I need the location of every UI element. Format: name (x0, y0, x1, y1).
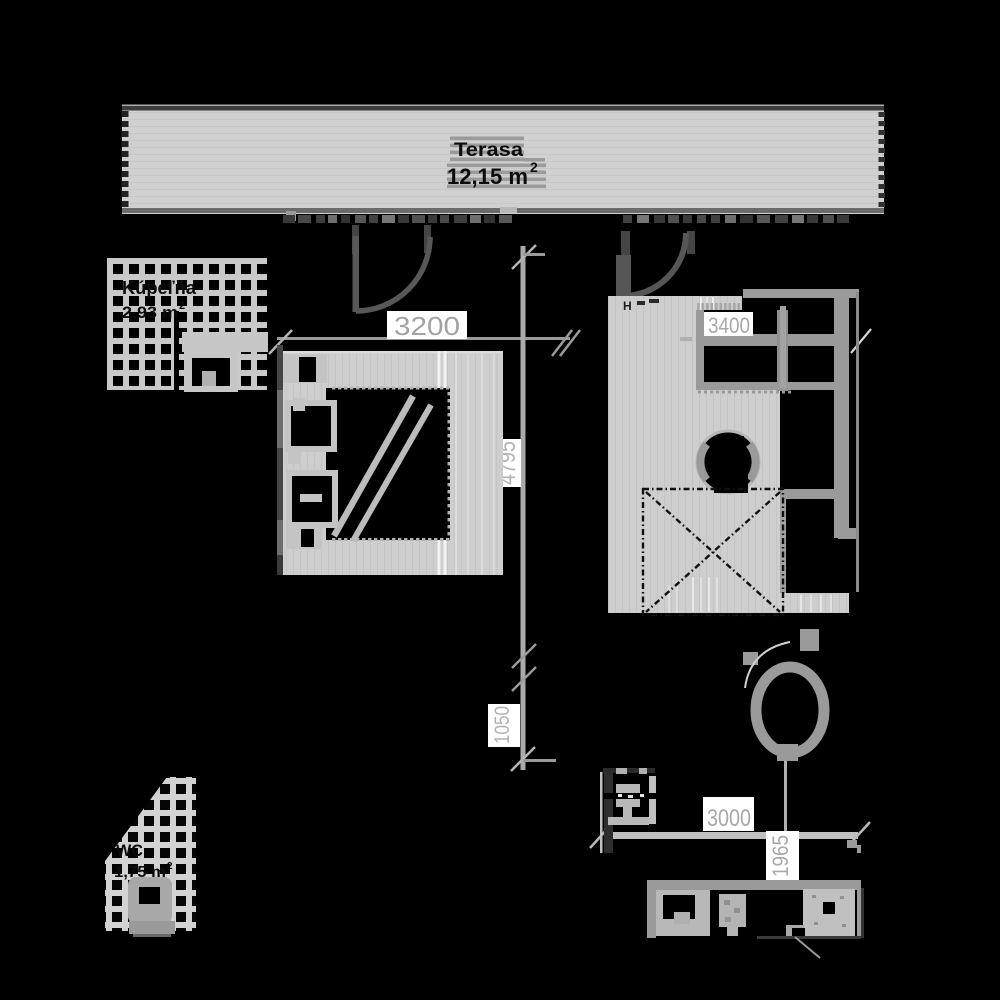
svg-text:2: 2 (179, 300, 185, 312)
svg-text:12,15 m: 12,15 m (447, 164, 528, 189)
svg-text:1965: 1965 (768, 835, 793, 877)
svg-text:3400: 3400 (708, 313, 750, 338)
svg-text:H: H (623, 299, 632, 313)
svg-text:2: 2 (167, 861, 173, 872)
svg-text:2: 2 (530, 159, 538, 175)
svg-text:Terasa: Terasa (454, 140, 523, 161)
svg-text:3000: 3000 (707, 805, 751, 832)
svg-text:3200: 3200 (394, 311, 460, 341)
svg-text:WC: WC (116, 841, 143, 860)
svg-text:2,93 m: 2,93 m (122, 303, 178, 322)
svg-text:1050: 1050 (491, 706, 514, 744)
svg-text:Kúpeľňa: Kúpeľňa (122, 278, 197, 298)
